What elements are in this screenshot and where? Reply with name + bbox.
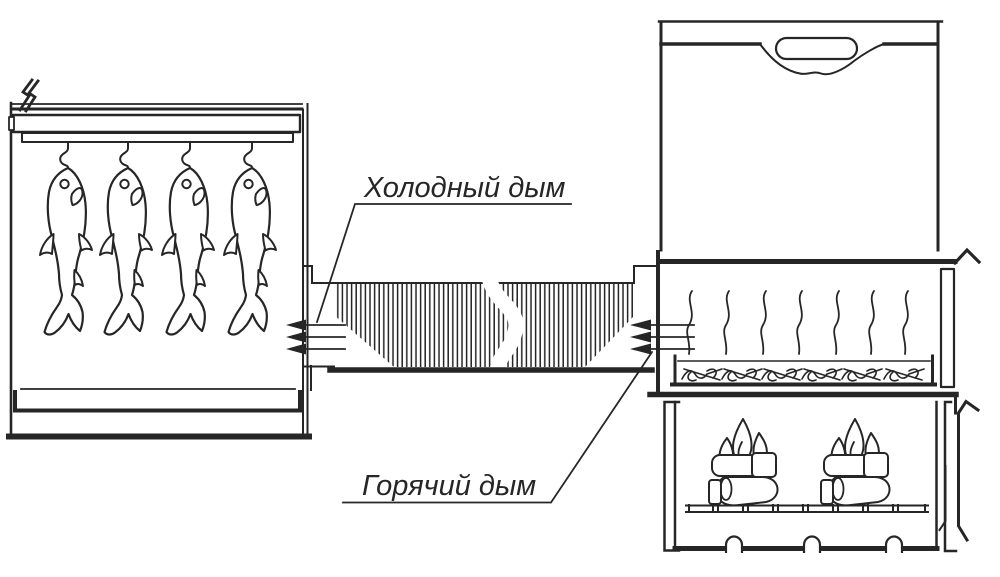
- smoking-cabinet: [9, 80, 309, 437]
- log-fire-icon: [709, 419, 778, 505]
- break-mark: [959, 402, 979, 541]
- hot-smoke-arrows: [630, 320, 694, 355]
- sawdust-chips: [682, 369, 924, 381]
- fire-grate: [686, 505, 928, 512]
- hot-smoke-label: Горячий дым: [362, 470, 536, 502]
- smokehouse-diagram-page: Холодный дым Горячий дым: [0, 0, 1000, 577]
- cabinet-lid: [9, 104, 302, 142]
- smoke-chamber: [630, 250, 979, 392]
- fish-icon: [100, 142, 152, 335]
- fire-chamber-right-bracket: [945, 402, 956, 551]
- drip-tray: [15, 389, 300, 411]
- chamber-right-damper: [941, 269, 954, 387]
- fire-chamber: [665, 402, 979, 554]
- break-mark: [940, 466, 946, 530]
- smoke-duct: [286, 266, 656, 390]
- exhaust-vent-icon: [20, 80, 38, 111]
- hanging-rail: [22, 133, 293, 142]
- firebox-assembly: [630, 22, 979, 554]
- break-mark: [955, 250, 979, 263]
- firebox-lid: [659, 22, 942, 251]
- fish-icon: [162, 142, 214, 335]
- cold-smoke-label: Холодный дым: [363, 172, 566, 204]
- cold-smoke-arrows: [286, 320, 345, 355]
- fish-icon: [40, 142, 92, 335]
- fish-icon: [224, 142, 276, 335]
- cabinet-walls: [9, 103, 309, 437]
- fire-chamber-left-bracket: [665, 402, 680, 551]
- lid-handle: [776, 38, 857, 59]
- hanging-fish-row: [40, 142, 276, 335]
- log-fire-icon: [821, 419, 890, 505]
- smokehouse-diagram: Холодный дым Горячий дым: [0, 0, 1000, 577]
- smoke-waves: [687, 291, 908, 354]
- earth-hatch: [334, 284, 633, 367]
- duct-ceiling: [303, 266, 656, 283]
